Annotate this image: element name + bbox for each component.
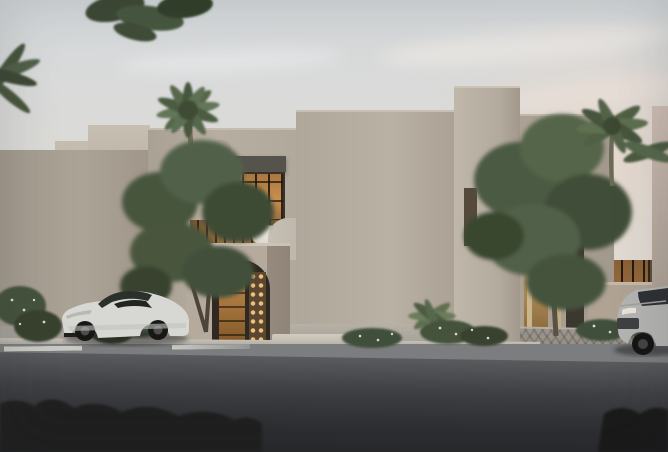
palm-fronds-left-edge (0, 40, 42, 116)
villa-exterior-photo: PLATINUM PROPERTIES FOR REAL ESTATE SERV… (0, 0, 668, 452)
sports-car (62, 291, 189, 346)
suv (614, 286, 668, 356)
tree-right (464, 114, 632, 336)
watermark: PLATINUM PROPERTIES FOR REAL ESTATE SERV… (0, 360, 668, 452)
overhanging-leaves (83, 0, 214, 45)
